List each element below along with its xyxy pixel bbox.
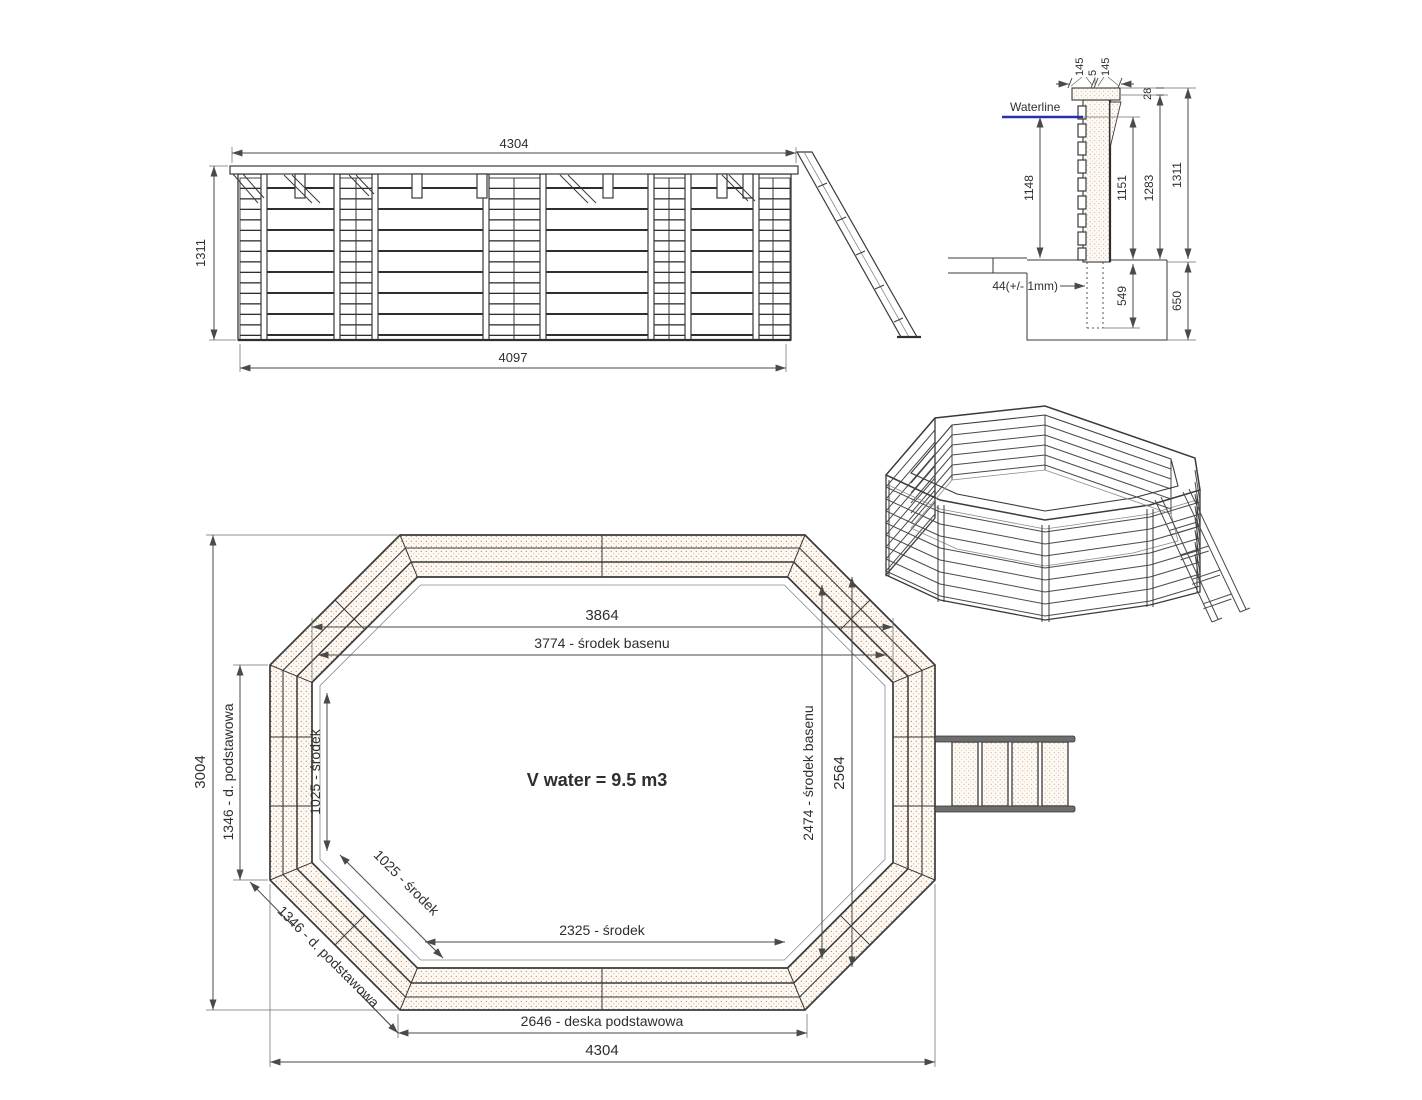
plan-center-height-label: 2474 - środek basenu bbox=[800, 705, 816, 840]
post bbox=[753, 174, 759, 340]
section-view: Waterline 145 5 145 1148 1151 1283 1311 … bbox=[948, 58, 1196, 340]
cap-dim-left: 145 bbox=[1074, 58, 1086, 76]
cap-dim-right: 145 bbox=[1100, 58, 1112, 76]
drawing-canvas: 4304 1311 4097 Waterline 145 5 145 1148 … bbox=[0, 0, 1422, 1100]
post bbox=[334, 174, 340, 340]
iso-view bbox=[886, 406, 1250, 622]
elevation-bottom-width-label: 4097 bbox=[499, 350, 528, 365]
plan-left-side-label: 1346 - d. podstawowa bbox=[220, 703, 236, 840]
elevation-view: 4304 1311 4097 bbox=[193, 136, 921, 372]
foundation-depth-label: 650 bbox=[1170, 291, 1184, 311]
post bbox=[685, 174, 691, 340]
plan-inner-width-label: 3864 bbox=[585, 607, 618, 624]
plan-inner-height-label: 2564 bbox=[831, 756, 848, 789]
pool-technical-drawing: 4304 1311 4097 Waterline 145 5 145 1148 … bbox=[0, 0, 1422, 1100]
water-depth-left-label: 1148 bbox=[1022, 175, 1036, 201]
waterline-label: Waterline bbox=[1010, 100, 1061, 114]
plank-note-label: 44(+/- 1mm) bbox=[992, 279, 1058, 293]
plan-left-center-label: 1025 - środek bbox=[307, 728, 323, 815]
water-depth-right-label: 1151 bbox=[1115, 175, 1129, 201]
plan-view: V water = 9.5 m3 3864 3774 - środek base… bbox=[192, 535, 1075, 1067]
cap-dim-gap: 5 bbox=[1087, 70, 1099, 76]
plan-outer-height-label: 3004 bbox=[192, 755, 209, 788]
post bbox=[372, 174, 378, 340]
plank-panel bbox=[544, 174, 650, 340]
post bbox=[540, 174, 546, 340]
plank-panel bbox=[689, 174, 755, 340]
corner-face bbox=[240, 178, 264, 340]
plank-panel bbox=[266, 174, 336, 340]
plan-bottom-plank-label: 2646 - deska podstawowa bbox=[521, 1013, 684, 1029]
post bbox=[483, 174, 489, 340]
elevation-top-width-label: 4304 bbox=[500, 136, 529, 151]
rim-offset-label: 28 bbox=[1142, 88, 1154, 100]
plan-outer-width-label: 4304 bbox=[585, 1042, 618, 1059]
wall-total-height-label: 1311 bbox=[1170, 162, 1184, 188]
post bbox=[648, 174, 654, 340]
post-embed-label: 549 bbox=[1115, 286, 1129, 306]
plan-center-width-label: 3774 - środek basenu bbox=[534, 635, 669, 651]
plan-bottom-center-label: 2325 - środek bbox=[559, 922, 646, 938]
volume-label: V water = 9.5 m3 bbox=[527, 770, 668, 790]
post bbox=[261, 174, 267, 340]
section-cap bbox=[1072, 88, 1120, 100]
elevation-height-label: 1311 bbox=[193, 239, 208, 267]
plank-panel bbox=[377, 174, 485, 340]
section-wall bbox=[1083, 100, 1110, 262]
wall-inner-height-label: 1283 bbox=[1142, 174, 1156, 201]
top-rim bbox=[230, 166, 798, 174]
plan-ladder bbox=[935, 736, 1075, 812]
plan-diag-center-label: 1025 - środek bbox=[371, 847, 444, 920]
elevation-ladder bbox=[797, 152, 921, 337]
